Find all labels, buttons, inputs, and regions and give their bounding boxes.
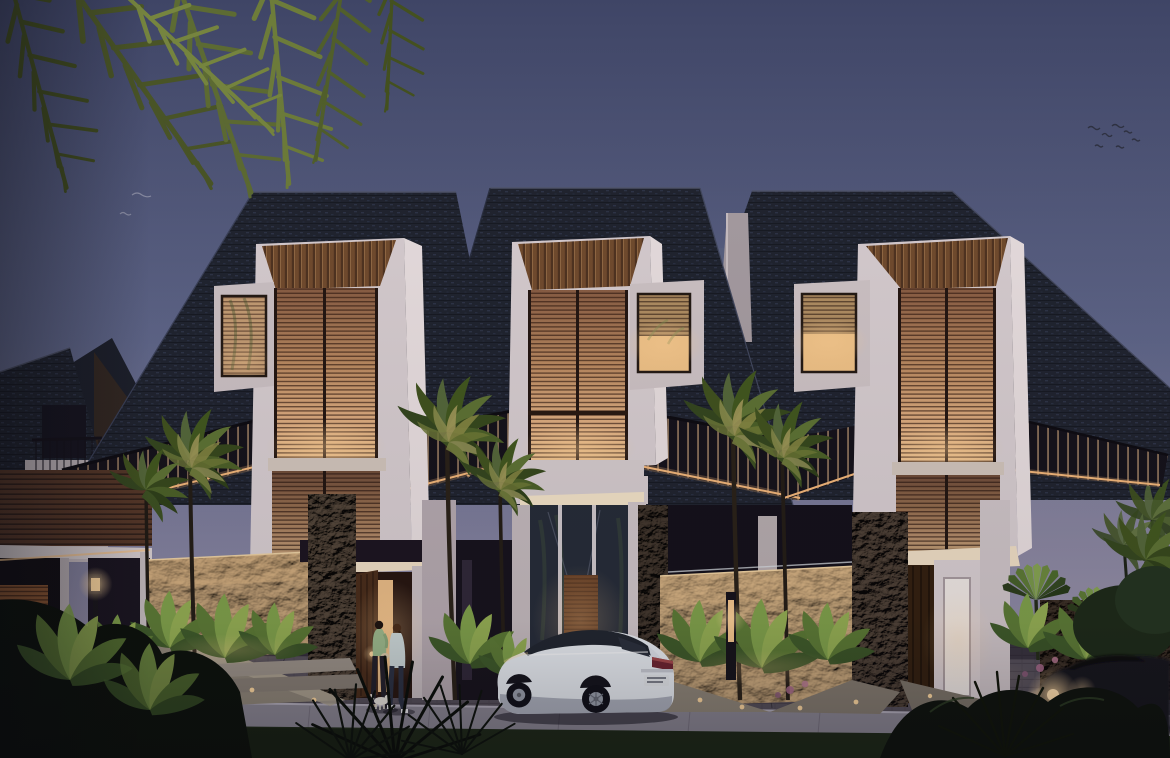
ambient-overlay: [0, 0, 1170, 758]
scene-canvas: [0, 0, 1170, 758]
